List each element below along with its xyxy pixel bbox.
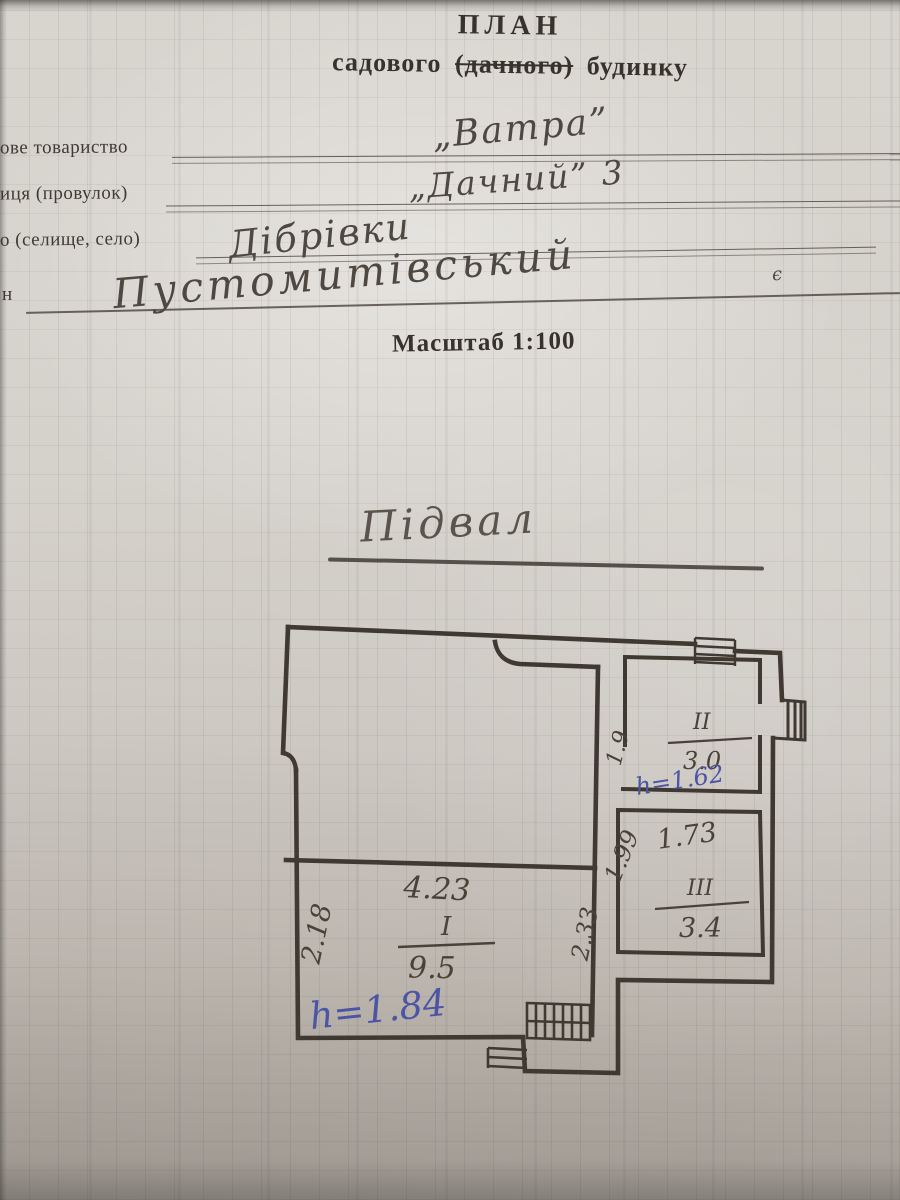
- room3-numeral: III: [686, 876, 714, 901]
- room2-fraction-bar: [668, 738, 752, 743]
- room3-dim-left: 1.99: [599, 826, 645, 886]
- field-label-street: иця (провулок): [0, 182, 128, 205]
- room2-dim-left: 1.9: [602, 728, 635, 768]
- room1-area: 9.5: [408, 951, 456, 986]
- side-steps: [773, 700, 805, 740]
- doc-title-line2: садового (дачного) будинку: [60, 43, 900, 87]
- room3-area: 3.4: [679, 913, 722, 944]
- room1-fraction-bar: [398, 943, 495, 947]
- room3-fraction-bar: [655, 902, 749, 909]
- title2-pre: садового: [332, 47, 455, 78]
- plan-caption-underline: [328, 557, 764, 570]
- room3-dim-top: 1.73: [655, 817, 719, 856]
- room1-dim-top: 4.23: [402, 870, 472, 909]
- field-label-district: н: [2, 284, 13, 306]
- room2-height-note: h=1.62: [634, 759, 726, 801]
- field-label-society: ове товариство: [0, 136, 128, 159]
- room1-dim-left: 2.18: [295, 901, 338, 967]
- floor-plan-drawing: 4.23 I 9.5 2.18 2.33 h=1.84 II 3.0 1.9 h…: [255, 605, 825, 1115]
- room1-numeral: I: [440, 912, 452, 942]
- field-rule-street: [166, 200, 900, 212]
- interior-stair-block: [527, 1003, 590, 1040]
- room1-height-note: h=1.84: [307, 981, 448, 1038]
- handwritten-society-value: „Ватра”: [431, 100, 612, 156]
- field-label-village: о (селище, село): [0, 228, 140, 251]
- handwritten-district-mark: є: [771, 264, 785, 286]
- top-entrance-steps: [695, 638, 735, 666]
- title2-post: будинку: [573, 51, 688, 82]
- room1-dim-right: 2.33: [565, 905, 604, 964]
- scale-label: Масштаб 1:100: [392, 327, 576, 358]
- room2-numeral: II: [692, 710, 712, 735]
- photographed-document: ПЛАН садового (дачного) будинку ове това…: [0, 0, 900, 1200]
- porch-steps: [488, 1048, 527, 1068]
- doc-title-line1: ПЛАН: [0, 3, 900, 49]
- title2-struck-word: (дачного): [455, 49, 574, 80]
- plan-caption: Підвал: [359, 493, 538, 551]
